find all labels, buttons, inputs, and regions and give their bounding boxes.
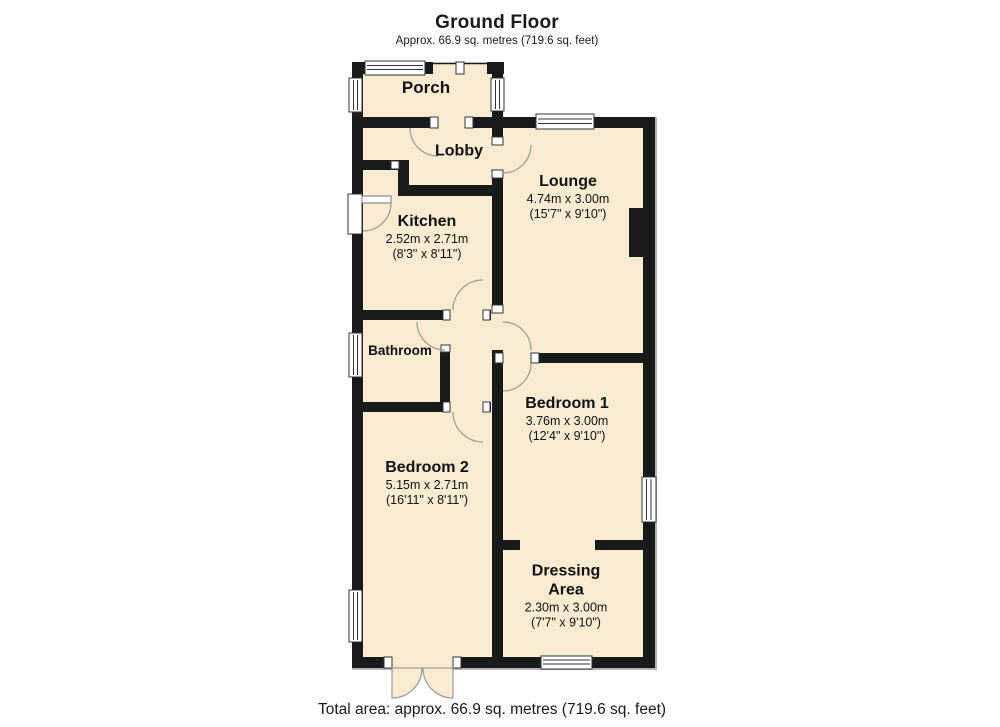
room-label-lounge: Lounge 4.74m x 3.00m (15'7" x 9'10")	[527, 173, 610, 221]
room-label-dressing-area: Dressing Area 2.30m x 3.00m (7'7" x 9'10…	[516, 562, 616, 629]
room-label-kitchen: Kitchen 2.52m x 2.71m (8'3" x 8'11")	[386, 213, 469, 261]
room-dimensions-imperial: (15'7" x 9'10")	[527, 206, 610, 221]
room-dimensions-imperial: (8'3" x 8'11")	[386, 246, 469, 261]
window	[541, 656, 592, 669]
room-dimensions-metric: 2.52m x 2.71m	[386, 232, 469, 247]
window	[491, 78, 504, 111]
floor-plan-page: Ground Floor Approx. 66.9 sq. metres (71…	[0, 0, 1000, 727]
window	[536, 114, 594, 129]
room-name: Porch	[402, 78, 450, 98]
room-name: Bedroom 2	[385, 459, 469, 478]
room-name: Bedroom 1	[525, 395, 609, 414]
room-label-lobby: Lobby	[435, 143, 483, 162]
french-door-arc	[392, 668, 422, 698]
room-dimensions-metric: 2.30m x 3.00m	[516, 600, 616, 615]
room-label-porch: Porch	[402, 78, 450, 98]
room-label-bedroom-2: Bedroom 2 5.15m x 2.71m (16'11" x 8'11")	[385, 459, 469, 507]
window	[642, 477, 656, 522]
room-name: Kitchen	[386, 213, 469, 232]
room-dimensions-metric: 4.74m x 3.00m	[527, 192, 610, 207]
room-name: Dressing Area	[516, 562, 616, 600]
room-label-bathroom: Bathroom	[368, 343, 432, 359]
french-door-arc	[423, 668, 453, 698]
window	[349, 590, 362, 642]
floor-plan-svg	[0, 0, 1000, 727]
room-name: Bathroom	[368, 343, 432, 359]
room-dimensions-imperial: (12'4" x 9'10")	[525, 428, 609, 443]
room-dimensions-imperial: (16'11" x 8'11")	[385, 492, 469, 507]
room-label-bedroom-1: Bedroom 1 3.76m x 3.00m (12'4" x 9'10")	[525, 395, 609, 443]
window	[349, 333, 362, 377]
room-name: Lounge	[527, 173, 610, 192]
room-dimensions-metric: 3.76m x 3.00m	[525, 414, 609, 429]
room-dimensions-metric: 5.15m x 2.71m	[385, 478, 469, 493]
room-dimensions-imperial: (7'7" x 9'10")	[516, 615, 616, 630]
chimney-breast	[629, 208, 643, 257]
room-name: Lobby	[435, 143, 483, 162]
window	[349, 78, 362, 112]
window	[365, 61, 425, 75]
wall-shadow-right	[655, 117, 657, 670]
